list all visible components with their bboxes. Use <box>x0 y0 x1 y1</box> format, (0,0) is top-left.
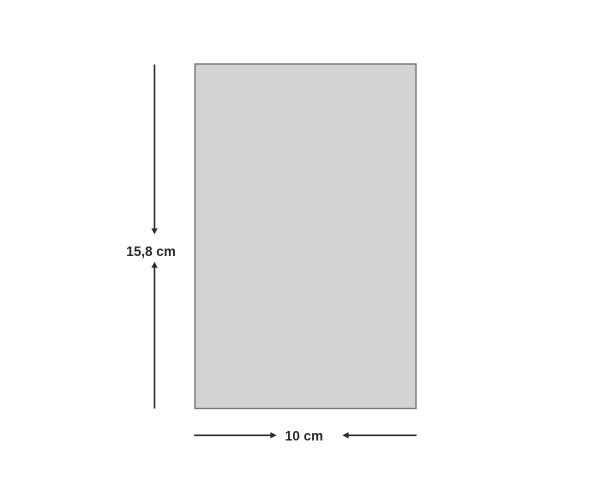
svg-text:15,8 cm: 15,8 cm <box>126 244 176 259</box>
svg-text:10 cm: 10 cm <box>285 429 323 444</box>
